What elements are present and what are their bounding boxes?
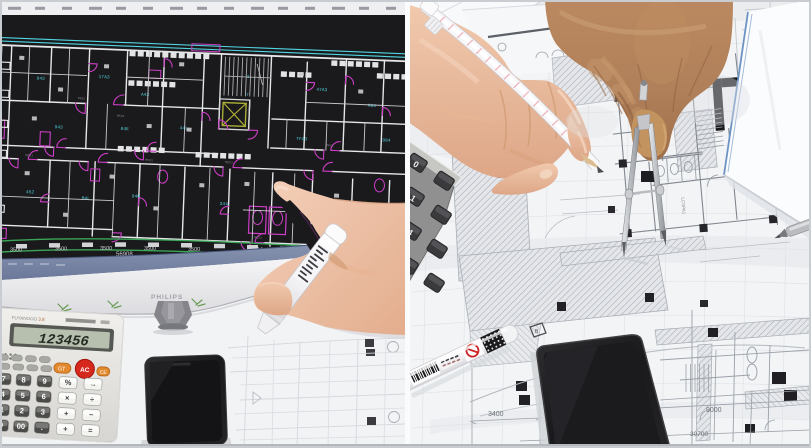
svg-text:47A3: 47A3 <box>316 87 328 93</box>
svg-text:00: 00 <box>17 422 26 431</box>
svg-text:7: 7 <box>246 92 249 98</box>
svg-text:3400: 3400 <box>488 411 504 418</box>
svg-text:M84: M84 <box>368 103 377 109</box>
svg-text:→: → <box>89 379 97 388</box>
svg-text:M4L: M4L <box>82 195 91 201</box>
svg-text:984: 984 <box>382 137 391 143</box>
svg-text:3: 3 <box>40 407 45 416</box>
svg-text:2: 2 <box>20 406 25 415</box>
svg-text:CE: CE <box>99 370 107 376</box>
svg-text:TFA3: TFA3 <box>296 136 308 142</box>
svg-text:123456: 123456 <box>38 332 91 351</box>
svg-text:3500: 3500 <box>100 246 112 252</box>
svg-text:M521: M521 <box>145 158 153 162</box>
svg-text:84N: 84N <box>132 193 141 199</box>
svg-text:9000: 9000 <box>706 407 722 414</box>
svg-text:M521: M521 <box>254 235 262 239</box>
svg-text:344: 344 <box>219 201 228 207</box>
svg-text:%: % <box>64 378 72 387</box>
svg-text:5: 5 <box>20 391 25 400</box>
svg-text:6: 6 <box>41 392 46 401</box>
svg-text:3500: 3500 <box>10 247 22 253</box>
svg-text:÷: ÷ <box>90 395 95 404</box>
svg-text:843: 843 <box>36 75 45 81</box>
svg-text:8: 8 <box>21 375 26 384</box>
svg-text:452: 452 <box>26 189 35 195</box>
svg-text:M521: M521 <box>78 96 86 100</box>
svg-text:GT: GT <box>58 366 67 372</box>
svg-text:7: 7 <box>1 374 6 383</box>
svg-text:84E: 84E <box>120 126 129 132</box>
svg-text:M521: M521 <box>117 114 125 118</box>
svg-text:30700: 30700 <box>690 431 708 438</box>
svg-text:17A3: 17A3 <box>98 74 110 80</box>
svg-text:9: 9 <box>42 376 47 385</box>
svg-text:M521: M521 <box>25 153 33 157</box>
svg-text:M521: M521 <box>326 143 334 147</box>
svg-text:PHILIPS: PHILIPS <box>151 294 183 301</box>
svg-text:1: 1 <box>247 74 250 80</box>
svg-text:943: 943 <box>54 124 63 130</box>
svg-text:3500: 3500 <box>144 246 156 252</box>
svg-text:3500: 3500 <box>55 246 67 252</box>
svg-text:M521: M521 <box>225 160 233 164</box>
svg-text:AC: AC <box>80 367 90 375</box>
